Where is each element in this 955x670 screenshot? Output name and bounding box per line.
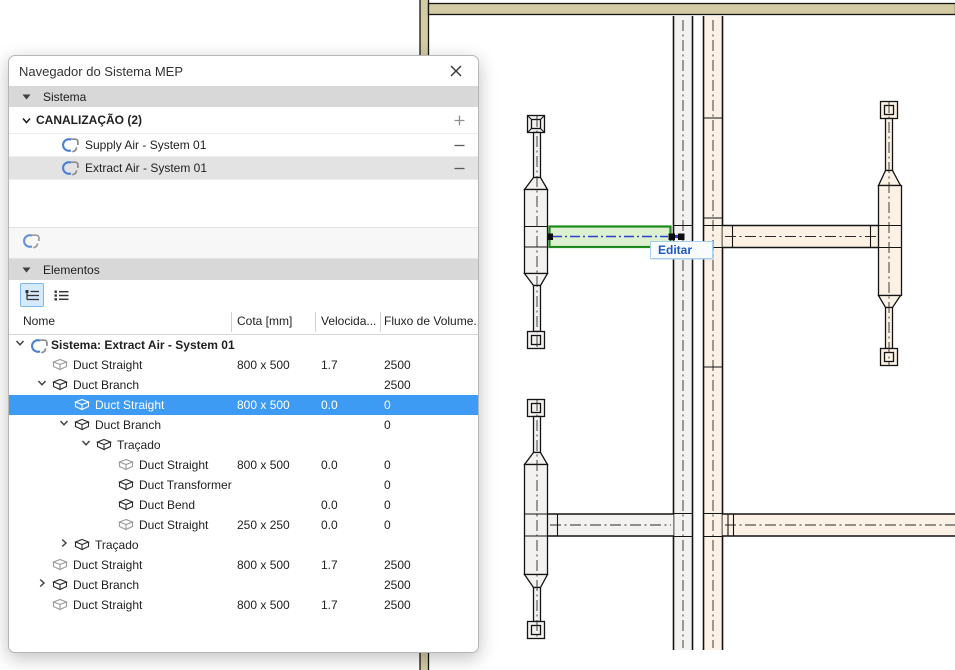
tree-view-button[interactable] [20, 283, 44, 307]
tree-row[interactable]: Duct Straight800 x 5001.72500 [9, 555, 478, 575]
duct-branch-icon [96, 438, 112, 451]
duct-branch-icon [74, 418, 90, 431]
canalizacao-label: CANALIZAÇÃO (2) [36, 113, 142, 127]
chevron-expanded-icon[interactable] [81, 438, 91, 448]
tree-row[interactable]: Traçado [9, 535, 478, 555]
duct-branch-icon [52, 578, 68, 591]
duct-horizontal-top-right[interactable] [723, 226, 879, 248]
duct-straight-icon [118, 458, 134, 471]
element-velocidade: 0.0 [321, 515, 338, 535]
ventilation-system-icon [61, 137, 80, 153]
edit-tooltip-label: Editar [658, 243, 692, 257]
tree-row[interactable]: Duct Straight800 x 5000.00 [9, 455, 478, 475]
element-fluxo: 0 [384, 475, 391, 495]
chevron-collapsed-icon[interactable] [59, 538, 69, 548]
duct-vertical-right[interactable] [704, 16, 723, 650]
element-name: Traçado [117, 435, 161, 455]
section-elementos[interactable]: Elementos [9, 259, 478, 280]
list-view-button[interactable] [49, 283, 73, 307]
duct-transformer-icon [118, 478, 134, 491]
systems-empty-area [9, 179, 478, 227]
wall-horizontal[interactable] [429, 4, 955, 15]
section-sistema-label: Sistema [43, 90, 86, 104]
element-fluxo: 2500 [384, 555, 411, 575]
triangle-down-icon [22, 267, 31, 273]
col-header-cota[interactable]: Cota [mm] [237, 314, 292, 328]
system-row[interactable]: Supply Air - System 01 [9, 133, 478, 156]
element-fluxo: 2500 [384, 355, 411, 375]
element-velocidade: 0.0 [321, 495, 338, 515]
duct-straight-icon [52, 598, 68, 611]
element-fluxo: 2500 [384, 375, 411, 395]
element-velocidade: 0.0 [321, 395, 338, 415]
element-velocidade: 1.7 [321, 595, 338, 615]
tree-row[interactable]: Sistema: Extract Air - System 01 [9, 335, 478, 355]
system-drop-strip [9, 227, 478, 259]
col-header-fluxo[interactable]: Fluxo de Volume... [384, 314, 479, 328]
add-system-button[interactable] [449, 110, 469, 130]
duct-straight-icon [52, 558, 68, 571]
tree-row[interactable]: Duct Straight800 x 5001.72500 [9, 595, 478, 615]
edit-tooltip[interactable]: Editar [650, 241, 713, 259]
list-view-icon [54, 289, 69, 302]
tree-row[interactable]: Duct Branch2500 [9, 575, 478, 595]
duct-straight-icon [118, 518, 134, 531]
close-icon[interactable] [447, 62, 465, 80]
element-fluxo: 0 [384, 395, 391, 415]
tree-row[interactable]: Duct Straight800 x 5000.00 [9, 395, 478, 415]
selection-handle[interactable] [678, 234, 685, 241]
system-name: Extract Air - System 01 [85, 161, 207, 175]
element-cota: 250 x 250 [237, 515, 290, 535]
elements-tree: Sistema: Extract Air - System 01Duct Str… [9, 335, 478, 615]
systems-list: Supply Air - System 01Extract Air - Syst… [9, 133, 478, 179]
column-separator[interactable] [315, 312, 316, 332]
remove-system-button[interactable] [449, 158, 469, 178]
duct-branch-icon [74, 538, 90, 551]
duct-horizontal-bottom-left[interactable] [548, 514, 674, 536]
tree-row[interactable]: Duct Branch0 [9, 415, 478, 435]
chevron-collapsed-icon[interactable] [37, 578, 47, 588]
element-name: Duct Branch [73, 575, 139, 595]
element-name: Duct Straight [73, 595, 142, 615]
element-name: Duct Straight [139, 455, 208, 475]
element-name: Duct Straight [95, 395, 164, 415]
chevron-expanded-icon[interactable] [21, 115, 32, 126]
air-terminal-top-left[interactable] [525, 116, 548, 349]
element-cota: 800 x 500 [237, 555, 290, 575]
element-fluxo: 0 [384, 415, 391, 435]
element-velocidade: 1.7 [321, 555, 338, 575]
duct-straight-icon [74, 398, 90, 411]
element-name: Sistema: Extract Air - System 01 [51, 335, 235, 355]
chevron-expanded-icon[interactable] [59, 418, 69, 428]
duct-horizontal-bottom-right[interactable] [723, 514, 955, 536]
panel-title: Navegador do Sistema MEP [19, 64, 183, 79]
selection-handle[interactable] [669, 234, 676, 241]
element-name: Duct Straight [73, 355, 142, 375]
canalizacao-group[interactable]: CANALIZAÇÃO (2) [9, 107, 478, 133]
element-cota: 800 x 500 [237, 395, 290, 415]
element-fluxo: 0 [384, 495, 391, 515]
element-name: Duct Branch [95, 415, 161, 435]
mep-navigator-panel: Navegador do Sistema MEP Sistema CANALIZ… [8, 55, 479, 653]
ventilation-system-icon [22, 233, 41, 254]
element-fluxo: 2500 [384, 595, 411, 615]
col-header-nome[interactable]: Nome [23, 314, 55, 328]
element-name: Duct Transformer [139, 475, 232, 495]
system-row[interactable]: Extract Air - System 01 [9, 156, 478, 179]
tree-row[interactable]: Duct Straight800 x 5001.72500 [9, 355, 478, 375]
air-terminal-bottom-left[interactable] [525, 400, 548, 639]
element-cota: 800 x 500 [237, 355, 290, 375]
tree-view-icon [25, 289, 40, 302]
element-name: Traçado [95, 535, 139, 555]
chevron-expanded-icon[interactable] [37, 378, 47, 388]
col-header-velocidade[interactable]: Velocida... [321, 314, 376, 328]
tree-row[interactable]: Duct Branch2500 [9, 375, 478, 395]
section-sistema[interactable]: Sistema [9, 86, 478, 107]
column-separator[interactable] [231, 312, 232, 332]
tree-row[interactable]: Duct Bend0.00 [9, 495, 478, 515]
element-velocidade: 1.7 [321, 355, 338, 375]
chevron-expanded-icon[interactable] [15, 338, 25, 348]
element-cota: 800 x 500 [237, 455, 290, 475]
element-name: Duct Straight [139, 515, 208, 535]
element-name: Duct Branch [73, 375, 139, 395]
tree-row[interactable]: Duct Straight250 x 2500.00 [9, 515, 478, 535]
tree-row[interactable]: Traçado [9, 435, 478, 455]
duct-straight-icon [52, 358, 68, 371]
element-velocidade: 0.0 [321, 455, 338, 475]
duct-vertical-left[interactable] [674, 16, 693, 650]
section-elementos-label: Elementos [43, 263, 100, 277]
duct-bend-icon [118, 498, 134, 511]
duct-branch-icon [52, 378, 68, 391]
column-separator[interactable] [380, 312, 381, 332]
element-name: Duct Straight [73, 555, 142, 575]
panel-header: Navegador do Sistema MEP [9, 56, 478, 86]
ventilation-system-icon [61, 160, 80, 176]
triangle-down-icon [22, 94, 31, 100]
element-cota: 800 x 500 [237, 595, 290, 615]
air-terminal-right[interactable] [879, 102, 902, 366]
tree-row[interactable]: Duct Transformer0 [9, 475, 478, 495]
remove-system-button[interactable] [449, 135, 469, 155]
element-fluxo: 0 [384, 455, 391, 475]
system-icon [30, 338, 49, 354]
elements-toolbar [9, 280, 478, 310]
element-fluxo: 2500 [384, 575, 411, 595]
element-fluxo: 0 [384, 515, 391, 535]
element-name: Duct Bend [139, 495, 195, 515]
table-header: Nome Cota [mm] Velocida... Fluxo de Volu… [9, 310, 478, 335]
system-name: Supply Air - System 01 [85, 138, 206, 152]
